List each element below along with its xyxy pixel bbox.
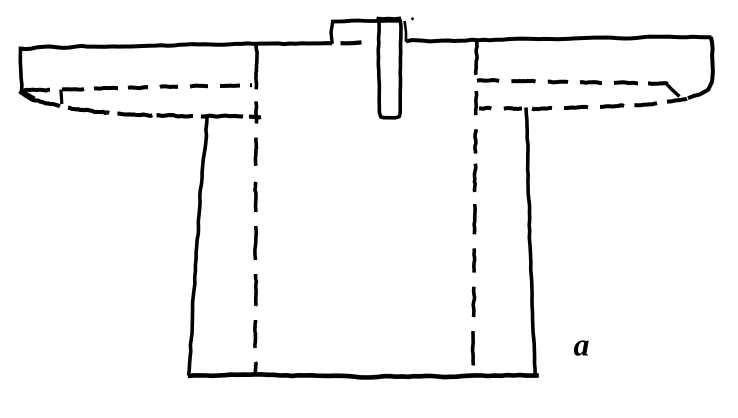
svg-text:a: a [574, 327, 590, 363]
